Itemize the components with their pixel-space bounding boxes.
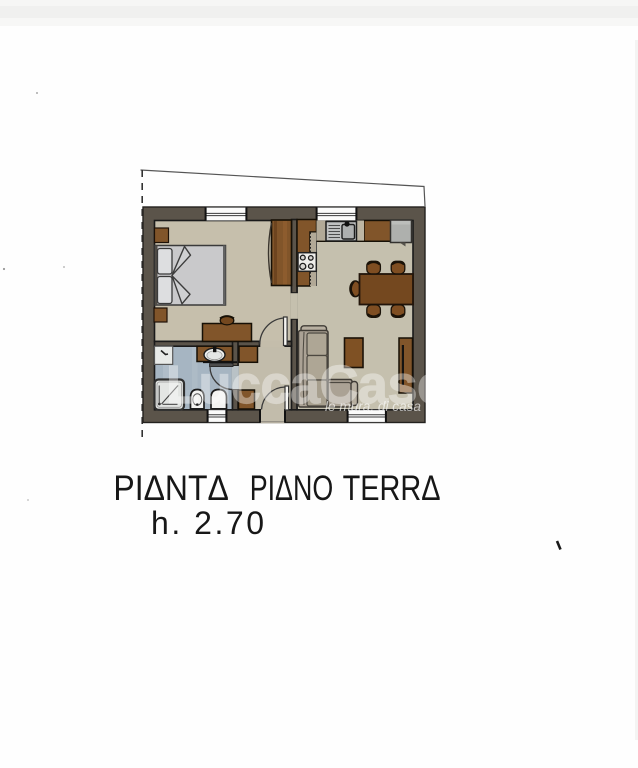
- svg-text:TERRΔ: TERRΔ: [343, 469, 441, 508]
- svg-text:PIΔNTΔ: PIΔNTΔ: [113, 469, 228, 508]
- svg-text:le mura, di casa: le mura, di casa: [325, 398, 421, 414]
- svg-text:PIΔNO: PIΔNO: [250, 469, 334, 508]
- svg-text:h. 2.70: h. 2.70: [151, 505, 264, 541]
